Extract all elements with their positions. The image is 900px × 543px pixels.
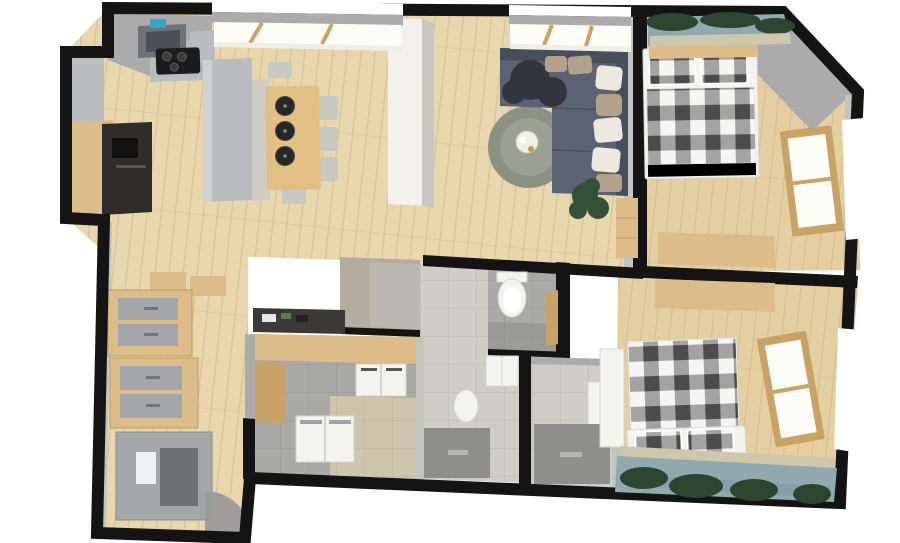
dining-chair-right-1 (318, 96, 338, 120)
cooktop (156, 47, 201, 75)
plaid-pillow-1b (701, 55, 747, 84)
bed-2 (624, 338, 746, 464)
bed-1 (643, 47, 759, 179)
hall-shelf-box-2 (190, 276, 226, 296)
dining-chair-right-3 (318, 157, 338, 181)
wardrobe-cabinet-upper (108, 290, 192, 356)
hood-accent (150, 19, 166, 28)
sideboard (616, 198, 638, 258)
coffee-table (516, 131, 538, 153)
floor-plan-canvas: Living room Entry hallway Bedroom 1 Bedr… (0, 0, 900, 543)
toilet-2 (454, 390, 478, 422)
laundry-left-wood-panel (255, 362, 286, 423)
floor-plan-svg: Living room Entry hallway Bedroom 1 Bedr… (0, 0, 900, 543)
wall-laundry-west-lower (243, 418, 255, 480)
console-item-plant (281, 313, 291, 319)
counter-handle (116, 165, 146, 168)
shower-drain-1 (448, 450, 468, 455)
white-wardrobe (600, 349, 624, 447)
console-item-dark (296, 315, 308, 322)
built-in-oven (112, 138, 138, 158)
corridor-west-wall-face (370, 262, 420, 330)
desk-bedroom-1 (658, 232, 775, 268)
dining-chair-bottom (282, 188, 306, 204)
laundry-left-wall-face (245, 334, 255, 419)
wall-wc-east (556, 262, 570, 358)
mirror-wardrobe (116, 432, 212, 520)
top-load-machines (356, 364, 406, 396)
bedroom1-side-window (780, 118, 866, 240)
desk-bedroom-2 (655, 279, 775, 312)
skylight-window-b (509, 5, 631, 52)
plaid-duvet-1 (647, 87, 756, 165)
dining-chair-top (268, 62, 292, 78)
dining-chair-right-2 (318, 127, 338, 151)
wardrobe-cabinet-lower (110, 358, 198, 428)
wardrobe-mirror (136, 452, 156, 484)
serving-plates (276, 97, 295, 166)
tall-cabinet (70, 54, 104, 124)
hall-shelf-box-1 (150, 272, 186, 292)
shower-drain-2 (560, 452, 582, 457)
wc-wooden-door (546, 290, 558, 346)
wall-bath-divider (519, 355, 531, 490)
console-item-white (262, 314, 276, 322)
island-highlight (203, 60, 212, 202)
laundry-top-wall-wood (252, 334, 420, 364)
washer-dryer-pair (296, 416, 354, 462)
laundry-right-wall-face (416, 337, 424, 479)
bedroom1-view-window (646, 12, 795, 47)
sheet-fold-1 (648, 163, 756, 177)
kitchen-counter-dark (102, 122, 152, 215)
plaid-pillow-1a (649, 56, 695, 85)
plaid-duvet-2 (628, 338, 739, 432)
skylight-window-a (212, 1, 403, 51)
